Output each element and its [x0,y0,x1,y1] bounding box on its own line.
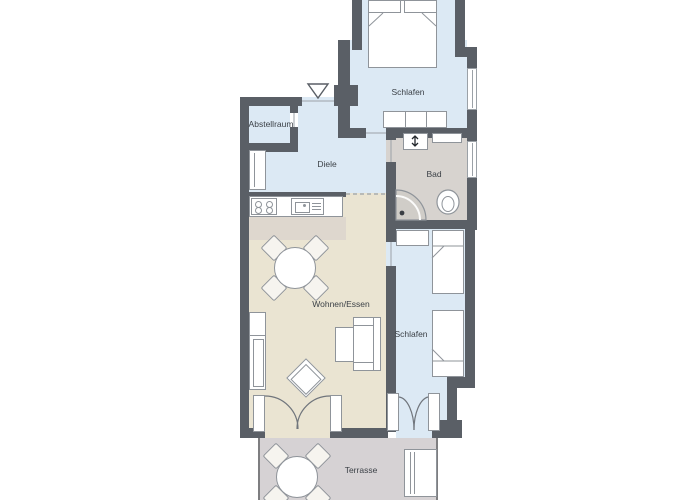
divider-line [426,112,427,127]
wall-segment [352,0,362,50]
single-bed-icon [432,310,464,377]
lounger-icon [404,449,437,497]
wall-segment [386,220,467,229]
wall-segment [465,228,475,378]
wall-segment [290,106,298,113]
hall-cabinet-icon [249,150,266,190]
cabinet-line [254,153,255,187]
wall-segment [467,178,477,230]
room-label-terrace: Terrasse [345,465,378,475]
door-leaf [387,393,399,431]
french-door-opening-living [265,428,330,438]
entrance-arrow-icon [308,84,328,98]
room-label-bedroom-right: Schlafen [394,329,427,339]
burner-icon [255,207,262,214]
wall-segment [447,377,475,388]
sofa-arm-line [354,325,373,326]
wall-segment [467,55,477,68]
wall-segment [348,128,366,138]
door-leaf [330,395,342,432]
room-label-living: Wohnen/Essen [312,299,370,309]
sink-drain [303,204,306,207]
room-label-bedroom-top: Schlafen [391,87,424,97]
french-door-opening-bedroom [396,428,432,438]
door-leaf [428,393,440,431]
room-label-hallway: Diele [317,159,336,169]
floor-plan: Schlafen Abstellraum Diele Bad Wohnen/Es… [0,0,700,500]
wardrobe-icon [396,230,429,246]
room-living-floor [346,193,386,428]
kitchen-sink-icon [291,198,324,215]
room-label-storage: Abstellraum [249,119,294,129]
coffee-table-icon [335,327,355,362]
door-opening-bedroom-right [386,242,396,266]
wall-segment [290,127,298,143]
washbasin-icon [403,133,428,150]
divider-line [405,112,406,127]
drainer-line [312,203,321,204]
wall-segment [386,128,396,140]
sofa-back-line [373,318,374,370]
door-leaf [253,395,265,432]
room-label-bathroom: Bad [426,169,441,179]
entrance-opening [302,97,334,106]
wall-segment [455,0,465,50]
wall-segment [386,229,396,242]
terrace-edge [258,438,260,500]
shelf-inner [253,339,264,387]
pillow-icon [404,0,437,13]
lounger-line [414,452,415,494]
door-opening-bedroom-top [366,128,386,138]
room-hallway-floor [338,133,386,196]
wall-segment [334,85,358,106]
burner-icon [266,207,273,214]
sideboard-icon [383,111,447,128]
wall-segment [240,97,302,106]
wall-segment [467,110,477,141]
drainer-line [312,206,321,207]
drainer-line [312,209,321,210]
door-opening-bathroom [386,140,396,162]
dining-table-icon [274,247,316,289]
wall-segment [386,162,396,220]
pillow-icon [368,0,401,13]
room-bathroom-floor [396,138,467,220]
bath-shelf-icon [432,133,462,143]
sofa-icon [353,317,381,371]
window [467,141,477,178]
terrace-table-icon [276,456,318,498]
kitchen-strip [249,217,346,240]
window [467,68,477,110]
shelf-icon [249,312,266,390]
sofa-arm-line [354,362,373,363]
single-bed-icon [432,230,464,294]
stove-icon [251,198,277,215]
lounger-line [410,452,411,494]
shelf-line [250,335,265,336]
